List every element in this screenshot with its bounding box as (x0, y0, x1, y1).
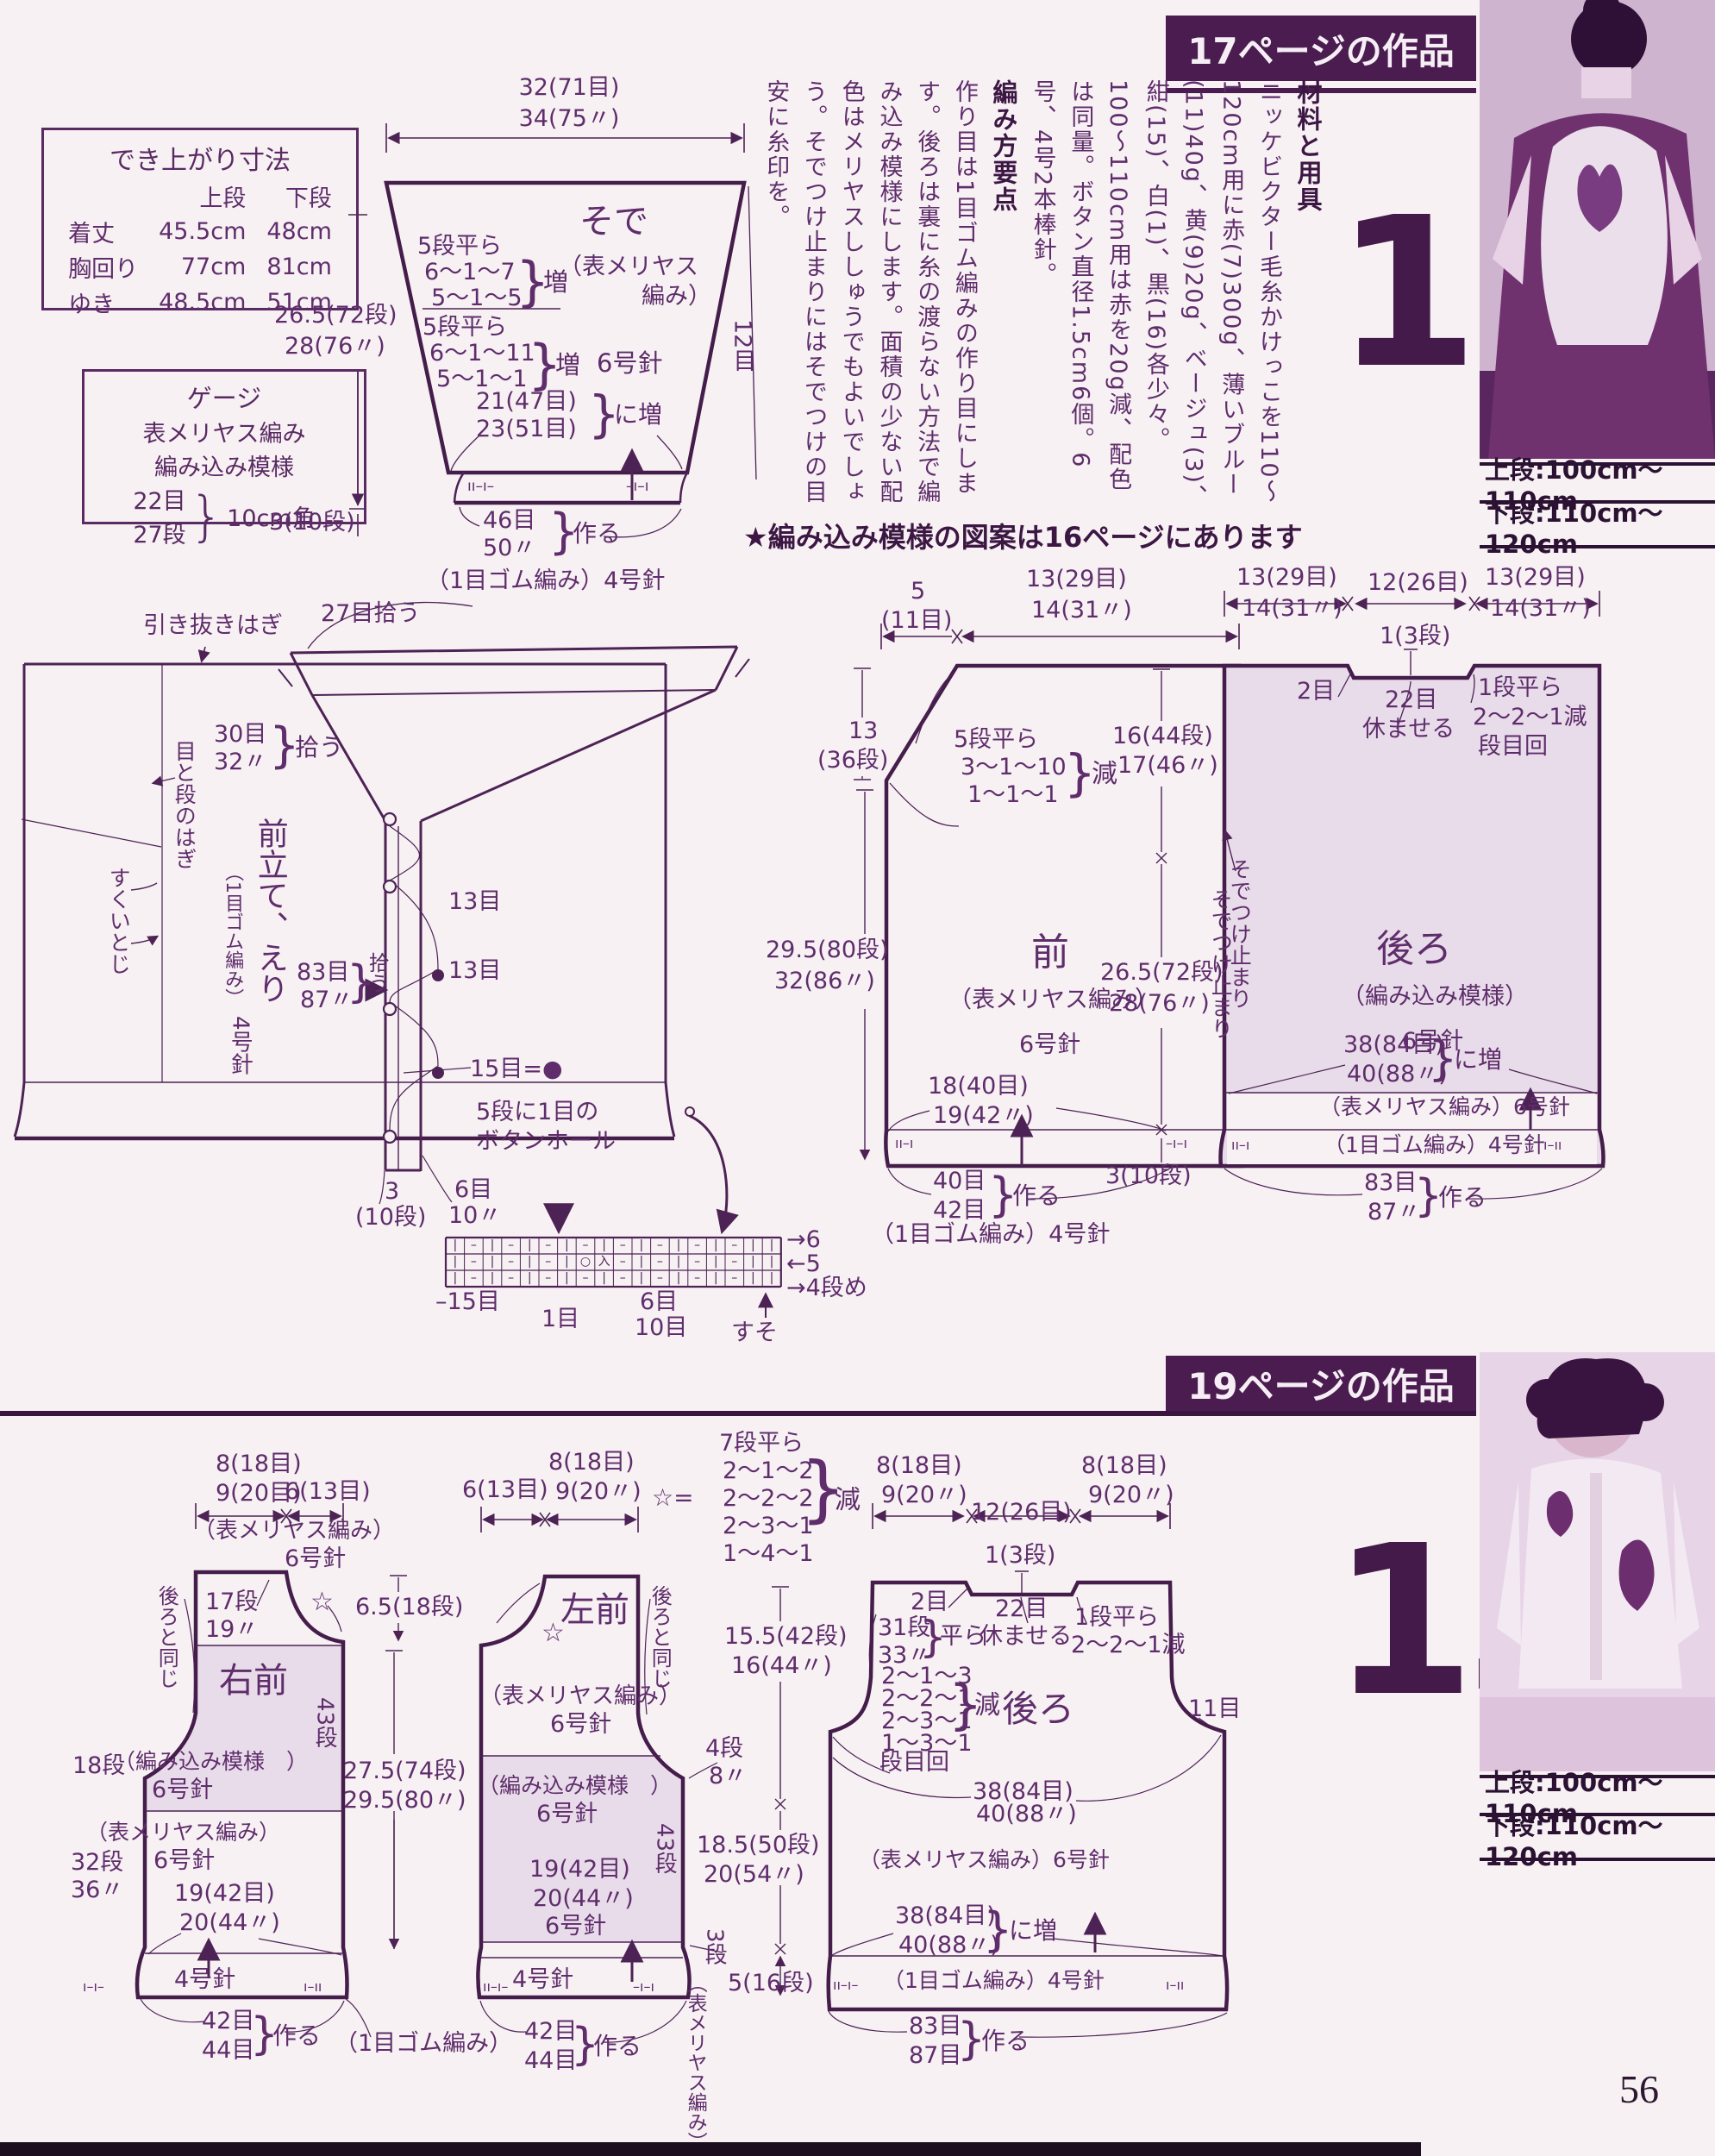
rib-chart-symbol: 入 (595, 1256, 614, 1268)
rib-chart-symbol: | (446, 1239, 465, 1251)
schematic-label: 6号針 (1019, 1033, 1080, 1057)
schematic-label: 前立て、えり (253, 818, 286, 1004)
schematic-label: 28(76〃) (285, 335, 385, 359)
schematic-label: 段目回 (1478, 735, 1548, 759)
schematic-label: ıı–ı– (833, 1978, 858, 1993)
schematic-label: –ı–ı (626, 479, 648, 495)
schematic-label: 10〃 (448, 1204, 501, 1228)
schematic-label: 13(29目) (1236, 566, 1337, 590)
schematic-label: 3(10段) (269, 511, 355, 535)
schematic-label: 87目 (909, 2044, 961, 2068)
rib-chart-symbol: – (539, 1272, 558, 1284)
rib-chart-symbol: – (502, 1272, 521, 1284)
materials-text: 材料と用具 ニッケビクター毛糸かけっこを110〜120cm用に赤(7)300g、… (759, 79, 1328, 515)
schematic-label: 後ろと同じ (648, 1585, 670, 1689)
rib-chart-symbol: | (762, 1239, 781, 1251)
schematic-label: 6号針 (597, 350, 662, 376)
page-number: 56 (1619, 2066, 1659, 2112)
rib-chart-symbol: – (725, 1256, 744, 1268)
schematic-label: 38(84目) (895, 1904, 996, 1928)
rib-chart-symbol: | (520, 1256, 539, 1268)
photo-pattern-12 (1480, 0, 1715, 459)
schematic-label: 32(71目) (487, 76, 651, 100)
section12-header: 17ページの作品 (1166, 16, 1476, 81)
rib-chart-symbol: – (725, 1272, 744, 1284)
schematic-label: –ı–ı (633, 1980, 654, 1995)
rib-chart-symbol: – (613, 1256, 632, 1268)
schematic-label: 32〃 (214, 750, 266, 774)
schematic-label: 5 (911, 580, 925, 604)
rib-chart-symbol: | (632, 1272, 651, 1284)
schematic-label: 後ろと同じ (155, 1585, 177, 1689)
schematic-label: 46目 (483, 509, 535, 533)
schematic-label: 5〜1〜5 (431, 286, 523, 310)
schematic-label: 作る (981, 2028, 1030, 2053)
rib-chart-symbol: – (576, 1272, 595, 1284)
photo13-caption-bottom: 下段:110cm〜120cm (1480, 1820, 1715, 1861)
schematic-label: 36〃 (71, 1878, 123, 1902)
gauge-box: ゲージ 表メリヤス編み 編み込み模様 22目 27段 } 10cm角 (82, 369, 366, 524)
schematic-label: 8〃 (709, 1764, 747, 1789)
schematic-label: 6〜1〜7 (424, 260, 516, 285)
rib-chart-symbol: | (669, 1256, 688, 1268)
schematic-label: 20(54〃) (704, 1863, 804, 1887)
table-row: 胸回り77cm81cm (58, 249, 342, 285)
schematic-label: 2〜2〜1減 (1473, 705, 1587, 730)
schematic-label: 4段 (705, 1737, 743, 1761)
rib-chart-symbol: – (502, 1256, 521, 1268)
rib-chart-symbol: | (446, 1272, 465, 1284)
schematic-label: 増 (543, 269, 568, 295)
schematic-label: 右前 (219, 1663, 288, 1699)
schematic-label: 後ろ (1002, 1690, 1074, 1728)
photo12-caption-bottom: 下段:110cm〜120cm (1480, 507, 1715, 548)
schematic-label: 左前 (560, 1592, 629, 1628)
schematic-label: 減 (835, 1487, 861, 1514)
table-row: 着丈45.5cm48cm (58, 214, 342, 249)
schematic-label: （編み込み模様 ） (114, 1751, 308, 1773)
schematic-label: 22目 (1385, 688, 1437, 712)
schematic-label: 22目 (995, 1597, 1048, 1621)
schematic-label: （表メリヤス編み）6号針 (859, 1849, 1110, 1871)
schematic-label: ←5 (786, 1252, 821, 1276)
schematic-label: 6.5(18段) (355, 1595, 463, 1620)
schematic-label: に増 (1009, 1918, 1057, 1943)
rib-chart-symbol: | (669, 1239, 688, 1251)
schematic-label: 4号針 (512, 1968, 573, 1992)
rib-chart-symbol: | (483, 1256, 502, 1268)
schematic-label: ☆= (652, 1485, 694, 1510)
rib-chart-symbol: | (446, 1256, 465, 1268)
schematic-label: 6〜1〜11 (429, 342, 535, 366)
schematic-label: 1目 (541, 1307, 579, 1332)
schematic-label: –15目 (435, 1290, 500, 1314)
schematic-label: そで (579, 204, 648, 240)
schematic-label: 23(51目) (476, 417, 577, 442)
rib-chart-symbol: – (651, 1272, 670, 1284)
schematic-label: ıı–ı– (483, 1980, 508, 1995)
schematic-label: 減 (1092, 761, 1117, 788)
schematic-label: 20(44〃) (533, 1887, 634, 1911)
schematic-label: 増 (555, 352, 580, 378)
schematic-label: 7段平ら (719, 1432, 804, 1456)
finished-size-table: でき上がり寸法 上段 下段 着丈45.5cm48cm 胸回り77cm81cm ゆ… (41, 128, 359, 310)
schematic-label: ı–ı– (83, 1980, 104, 1995)
schematic-label: 42目 (933, 1199, 986, 1223)
schematic-label: 14(31〃) (1242, 597, 1343, 621)
rib-chart-symbol: | (595, 1272, 614, 1284)
rib-chart-symbol: – (613, 1239, 632, 1251)
schematic-label: 1段平ら (1478, 676, 1562, 700)
rib-chart-symbol: – (539, 1239, 558, 1251)
schematic-label: 後ろ (1376, 930, 1452, 969)
schematic-label: ıı–ı (895, 1137, 913, 1151)
schematic-label: →6 (786, 1228, 821, 1252)
schematic-label: （表メリヤス編み） (685, 1973, 705, 2152)
schematic-label: 43段 (652, 1823, 675, 1874)
schematic-label: 段目回 (879, 1751, 949, 1775)
schematic-label: 6(13目) (462, 1478, 548, 1502)
rib-chart-symbol: | (483, 1239, 502, 1251)
rib-chart-symbol: – (688, 1256, 707, 1268)
schematic-label: 16(44段) (1112, 724, 1213, 749)
size-row-label (58, 179, 148, 214)
schematic-label: 18.5(50段) (697, 1833, 820, 1858)
schematic-label: 6号針 (550, 1713, 611, 1737)
schematic-label: ıı–ı (1231, 1138, 1249, 1153)
schematic-label: 5(16段) (728, 1971, 814, 1996)
schematic-label: 42目 (202, 2009, 254, 2034)
rib-chart-symbol: – (725, 1239, 744, 1251)
schematic-label: 13(29目) (1485, 566, 1586, 590)
schematic-label: ıı–ı– (467, 479, 494, 495)
schematic-label: 3(10段) (1105, 1164, 1192, 1188)
schematic-label: 14(31〃) (1490, 597, 1591, 621)
schematic-label: 34(75〃) (487, 107, 651, 131)
schematic-label: 作る (1438, 1185, 1487, 1210)
gauge-brace: } (190, 485, 223, 548)
schematic-label: （1目ゴム編み） (222, 862, 242, 1007)
schematic-label: 3〜1〜10 (961, 755, 1067, 780)
schematic-label: 13 (848, 719, 878, 743)
schematic-label: 6号針 (152, 1778, 213, 1802)
schematic-label: 21(47目) (476, 390, 577, 414)
schematic-label: 8(18目) (216, 1452, 302, 1476)
schematic-label: （1目ゴム編み）4号針 (426, 569, 665, 593)
schematic-label: 29.5(80〃) (343, 1789, 466, 1813)
size-col1: 上段 (148, 179, 256, 214)
schematic-label: 1(3段) (985, 1544, 1055, 1568)
schematic-label: 8(18目) (876, 1454, 962, 1478)
schematic-label: （表メリヤス編み） (479, 1685, 681, 1708)
schematic-label: 8(18目) (548, 1451, 635, 1475)
schematic-label: 作る (272, 2023, 321, 2048)
materials-body: ニッケビクター毛糸かけっこを110〜120cm用に赤(7)300g、薄いブルー(… (1030, 79, 1282, 510)
schematic-label: （1目ゴム編み）4号針 (883, 1970, 1105, 1992)
rib-chart-symbol: | (744, 1272, 763, 1284)
schematic-label: 減 (974, 1692, 1000, 1720)
schematic-label: 6号針 (536, 1802, 598, 1827)
schematic-label: （表メリヤス編み）6号針 (1319, 1096, 1570, 1119)
rib-chart-symbol: – (688, 1239, 707, 1251)
magazine-page: 17ページの作品 12 上段:100cm〜110cm 下段:110cm〜120c… (0, 0, 1715, 2156)
howto-header: 編み方要点 (989, 79, 1018, 213)
rib-chart-symbol: | (520, 1272, 539, 1284)
schematic-label: 4号針 (174, 1968, 235, 1992)
rib-chart-symbol: | (520, 1239, 539, 1251)
rib-chart-symbol: | (595, 1239, 614, 1251)
schematic-label: 27目拾う (321, 602, 420, 626)
schematic-label: 5段に1目の (476, 1100, 598, 1125)
rib-chart-symbol: | (558, 1239, 577, 1251)
rib-chart-symbol: | (706, 1272, 725, 1284)
schematic-label: （編み込み模様） (1342, 985, 1528, 1009)
schematic-label: 27.5(74段) (343, 1759, 466, 1783)
schematic-label: 3 (385, 1180, 399, 1204)
schematic-label: （編み込み模様 ） (478, 1775, 672, 1797)
schematic-label: 作る (593, 2034, 642, 2059)
schematic-label: 休ませる (980, 1625, 1072, 1649)
schematic-label: 1段平ら (1074, 1606, 1159, 1630)
schematic-label: 5段平ら (422, 316, 507, 340)
gauge-line2: 編み込み模様 (84, 448, 364, 482)
schematic-label: 作る (573, 521, 621, 546)
schematic-label: （1目ゴム編み） (335, 2032, 512, 2056)
schematic-label: すそ (731, 1321, 778, 1345)
schematic-label: 拾う (295, 735, 343, 760)
rib-chart-symbol: | (762, 1256, 781, 1268)
schematic-label: 作る (1012, 1183, 1061, 1208)
rib-chart-symbol: ○ (576, 1256, 595, 1268)
schematic-label: に増 (614, 402, 662, 427)
scan-edge-bar (0, 2142, 1421, 2156)
schematic-label: 5段平ら (417, 235, 502, 259)
schematic-label: 14(31〃) (1031, 599, 1132, 623)
schematic-label: 13目 (448, 959, 501, 983)
schematic-label: 拾う (366, 952, 387, 993)
rib-chart-symbol: | (669, 1272, 688, 1284)
schematic-label: すくいとじ (107, 867, 129, 975)
schematic-label: そでつけ止まり (1228, 858, 1250, 1009)
gauge-rows: 27段 (133, 516, 185, 549)
schematic-label: 87〃 (300, 988, 353, 1012)
schematic-label: –ı–ı (1166, 1137, 1187, 1151)
rib-chart-symbol: – (651, 1256, 670, 1268)
schematic-label: 28(76〃) (1109, 992, 1210, 1016)
schematic-label: （表メリヤス編み） (86, 1821, 280, 1844)
gauge-title: ゲージ (84, 379, 364, 415)
schematic-label: 休ませる (1362, 718, 1455, 742)
schematic-label: 9(20〃) (881, 1483, 967, 1507)
schematic-label: →4段め (786, 1276, 867, 1300)
schematic-label: ı–ıı (1166, 1978, 1184, 1993)
schematic-label: 4号針 (228, 1016, 251, 1075)
rib-chart-symbol: – (539, 1256, 558, 1268)
rib-chart-symbol: – (502, 1239, 521, 1251)
rib-chart-symbol: – (576, 1239, 595, 1251)
rib-chart-symbol: | (558, 1272, 577, 1284)
rib-chart-symbol: | (558, 1256, 577, 1268)
schematic-label: （1目ゴム編み）4号針 (871, 1223, 1110, 1247)
rib-chart-symbol: | (483, 1272, 502, 1284)
schematic-label: 前 (1031, 933, 1069, 973)
schematic-label: 50〃 (483, 536, 535, 561)
rib-chart-symbol: – (651, 1239, 670, 1251)
rib-chart-symbol: | (632, 1239, 651, 1251)
schematic-label: (36段) (817, 749, 888, 773)
schematic-label: （1目ゴム編み）4号針 (1324, 1134, 1545, 1156)
schematic-label: ☆ (310, 1589, 334, 1616)
schematic-label: 44目 (202, 2039, 254, 2063)
rib-chart-symbol: | (744, 1256, 763, 1268)
schematic-label: 6目 (640, 1290, 678, 1314)
rib-chart-symbol: – (465, 1272, 484, 1284)
rib-chart-symbol: | (706, 1239, 725, 1251)
schematic-label: 19(42目) (529, 1858, 630, 1882)
schematic-label: ı–ıı (304, 1980, 322, 1995)
photo-pattern-13 (1480, 1352, 1715, 1771)
star-note: ★編み込み模様の図案は16ページにあります (743, 516, 1303, 555)
schematic-label: ı–ıı (1543, 1138, 1562, 1153)
schematic-label: 26.5(72段) (274, 304, 397, 328)
schematic-label: ボタンホール (476, 1130, 616, 1154)
schematic-label: 11目 (1188, 1697, 1241, 1721)
schematic-label: 26.5(72段) (1100, 961, 1224, 985)
schematic-label: 43段 (312, 1697, 335, 1748)
schematic-label: に増 (1454, 1047, 1502, 1072)
schematic-label: 3段 (702, 1928, 725, 1965)
schematic-label: 1〜4〜1 (723, 1542, 814, 1566)
schematic-label: 1(3段) (1380, 624, 1450, 649)
schematic-label: 編み） (642, 285, 711, 309)
howto-body: 作り目は1目ゴム編みの作り目にします。後ろは裏に糸の渡らない方法で編み込み模様に… (762, 79, 978, 505)
schematic-label: 9(20〃) (1088, 1483, 1174, 1507)
schematic-label: 30目 (214, 723, 266, 747)
schematic-label: 20(44〃) (179, 1911, 280, 1935)
schematic-label: 40(88〃) (976, 1802, 1077, 1827)
schematic-label: 32段 (71, 1851, 123, 1875)
schematic-label: 13目 (448, 890, 501, 914)
schematic-label: （表メリヤス編み） (193, 1520, 395, 1543)
schematic-label: 17(46〃) (1117, 754, 1218, 778)
gauge-sts: 22目 (133, 482, 185, 516)
schematic-label: （表メリヤス (559, 255, 698, 279)
schematic-label: 5段平ら (954, 728, 1038, 752)
rib-chart-symbol: | (744, 1239, 763, 1251)
section13-header: 19ページの作品 (1166, 1356, 1476, 1411)
rib-chart-symbol: | (706, 1256, 725, 1268)
schematic-label: 17段 (205, 1590, 258, 1614)
gauge-line1: 表メリヤス編み (84, 415, 364, 448)
schematic-label: 15目=● (470, 1057, 563, 1081)
rib-chart-symbol: | (762, 1272, 781, 1284)
schematic-label: 平ら (940, 1625, 986, 1649)
schematic-label: 12(26目) (971, 1501, 1072, 1525)
schematic-label: 引き抜きはぎ (143, 614, 283, 638)
schematic-label: 19(42〃) (933, 1104, 1034, 1128)
schematic-label: ☆ (541, 1620, 565, 1647)
schematic-label: 87〃 (1368, 1200, 1420, 1225)
size-table-title: でき上がり寸法 (44, 139, 356, 177)
schematic-label: 6(13目) (285, 1480, 371, 1504)
rib-chart-symbol: – (613, 1272, 632, 1284)
schematic-label: 6号針 (153, 1849, 215, 1873)
schematic-label: (10段) (355, 1206, 426, 1230)
schematic-label: 83目 (909, 2015, 961, 2039)
schematic-label: 32(86〃) (774, 969, 875, 993)
schematic-label: 2目 (1297, 680, 1335, 704)
schematic-label: 1〜1〜1 (967, 783, 1059, 807)
schematic-label: 16(44〃) (731, 1654, 832, 1678)
schematic-label: 15.5(42段) (724, 1625, 848, 1649)
schematic-label: 12(26目) (1368, 571, 1468, 595)
rib-chart-symbol: – (465, 1256, 484, 1268)
schematic-label: 83目 (1364, 1171, 1417, 1195)
schematic-label: 44目 (524, 2049, 577, 2073)
rib-chart-symbol: | (632, 1256, 651, 1268)
schematic-label: 19〃 (205, 1618, 258, 1642)
schematic-label: 42目 (524, 2020, 577, 2044)
materials-header: 材料と用具 (1293, 79, 1323, 213)
schematic-label: 6号針 (285, 1547, 346, 1571)
rib-chart-symbol: – (688, 1272, 707, 1284)
schematic-label: 29.5(80段) (766, 938, 889, 962)
schematic-label: 9(20〃) (555, 1480, 642, 1504)
schematic-label: 18(40目) (928, 1075, 1029, 1099)
schematic-label: 13(29目) (1026, 567, 1127, 592)
size-col2: 下段 (256, 179, 342, 214)
schematic-label: (11目) (881, 609, 952, 633)
schematic-label: 10目 (635, 1316, 687, 1340)
schematic-label: 83目 (297, 961, 349, 985)
schematic-label: 2〜2〜1減 (1071, 1633, 1186, 1658)
schematic-label: 8(18目) (1081, 1454, 1167, 1478)
schematic-label: 6目 (454, 1178, 492, 1202)
schematic-label: 40目 (933, 1169, 986, 1194)
rib-chart-symbol: – (465, 1239, 484, 1251)
schematic-label: 19(42目) (174, 1882, 275, 1906)
schematic-label: 12目 (729, 319, 754, 372)
schematic-label: 6号針 (545, 1915, 606, 1939)
schematic-label: 目と段のはぎ (172, 740, 195, 869)
